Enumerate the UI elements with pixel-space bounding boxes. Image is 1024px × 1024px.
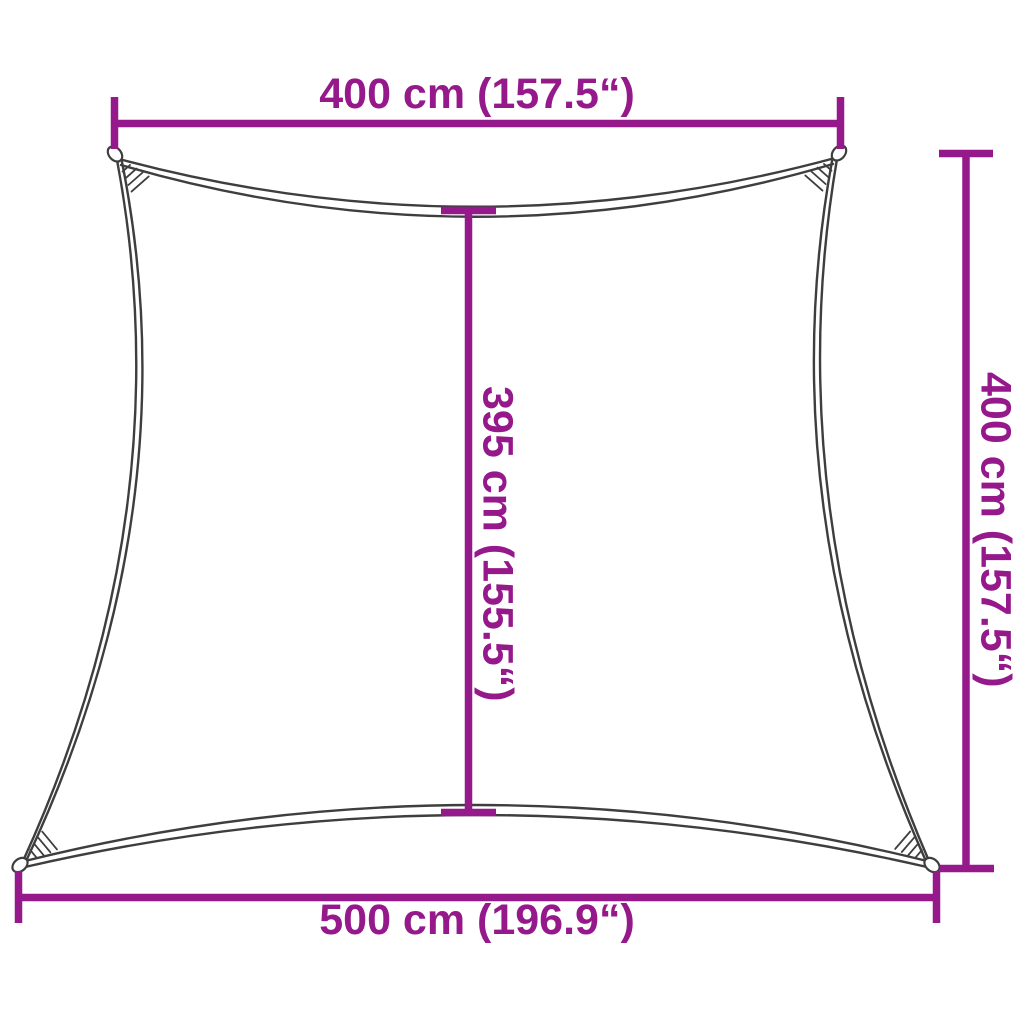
hatch-line [34, 844, 44, 856]
hatch-line [915, 850, 922, 858]
sail-right-edge-outer [820, 159, 929, 861]
product-dimension-diagram: 400 cm (157.5“) 400 cm (157.5“) 395 cm (… [0, 0, 1024, 1024]
dimension-label-top: 400 cm (157.5“) [114, 72, 840, 118]
hatch-line [908, 844, 918, 855]
sail-top-edge-outer [119, 158, 835, 207]
sail-bottom-edge-outer [25, 815, 927, 867]
sail-left-edge-outer [23, 160, 136, 861]
hatch-line [132, 176, 149, 191]
hatch-line [818, 168, 829, 178]
hatch-line [42, 832, 57, 850]
hatch-line [30, 850, 36, 858]
hatch-line [805, 175, 822, 190]
dimension-label-middle: 395 cm (155.5“) [474, 386, 520, 702]
dimension-label-bottom: 500 cm (196.9“) [18, 898, 936, 944]
sail-left-edge-inner [27, 162, 142, 859]
dimension-label-right: 400 cm (157.5“) [972, 372, 1018, 688]
hatch-line [895, 832, 910, 849]
hatch-line [125, 169, 136, 179]
